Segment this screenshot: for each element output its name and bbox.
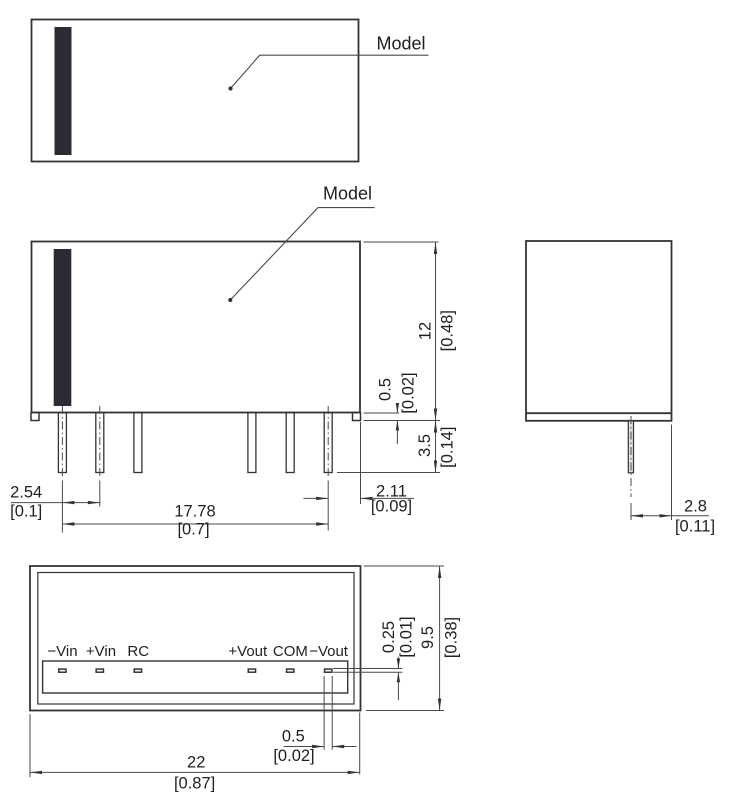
svg-text:0.5: 0.5 xyxy=(282,728,305,746)
svg-text:RC: RC xyxy=(127,643,149,660)
svg-text:22: 22 xyxy=(187,754,205,772)
svg-text:[0.02]: [0.02] xyxy=(273,747,314,765)
svg-text:3.5: 3.5 xyxy=(416,434,434,457)
svg-text:[0.09]: [0.09] xyxy=(371,498,412,516)
svg-text:[0.14]: [0.14] xyxy=(439,427,457,468)
svg-text:12: 12 xyxy=(417,322,435,340)
svg-text:Model: Model xyxy=(323,184,372,204)
svg-text:[0.11]: [0.11] xyxy=(675,518,715,536)
svg-text:+Vin: +Vin xyxy=(86,643,116,660)
svg-text:0.25: 0.25 xyxy=(380,621,398,653)
svg-text:[0.01]: [0.01] xyxy=(398,616,416,657)
svg-text:2.8: 2.8 xyxy=(684,498,707,516)
svg-text:0.5: 0.5 xyxy=(376,378,394,401)
svg-text:Model: Model xyxy=(376,34,425,54)
svg-text:[0.87]: [0.87] xyxy=(174,775,215,793)
svg-text:2.54: 2.54 xyxy=(10,484,42,502)
svg-text:−Vout: −Vout xyxy=(309,643,349,660)
svg-text:[0.7]: [0.7] xyxy=(177,521,209,539)
svg-text:[0.1]: [0.1] xyxy=(10,503,42,521)
svg-text:[0.38]: [0.38] xyxy=(442,617,460,658)
svg-text:COM: COM xyxy=(273,643,308,660)
svg-text:−Vin: −Vin xyxy=(47,643,77,660)
svg-text:[0.48]: [0.48] xyxy=(439,310,457,351)
svg-text:+Vout: +Vout xyxy=(228,643,268,660)
svg-text:17.78: 17.78 xyxy=(174,503,215,521)
svg-text:[0.02]: [0.02] xyxy=(400,372,418,413)
svg-text:9.5: 9.5 xyxy=(419,626,437,649)
